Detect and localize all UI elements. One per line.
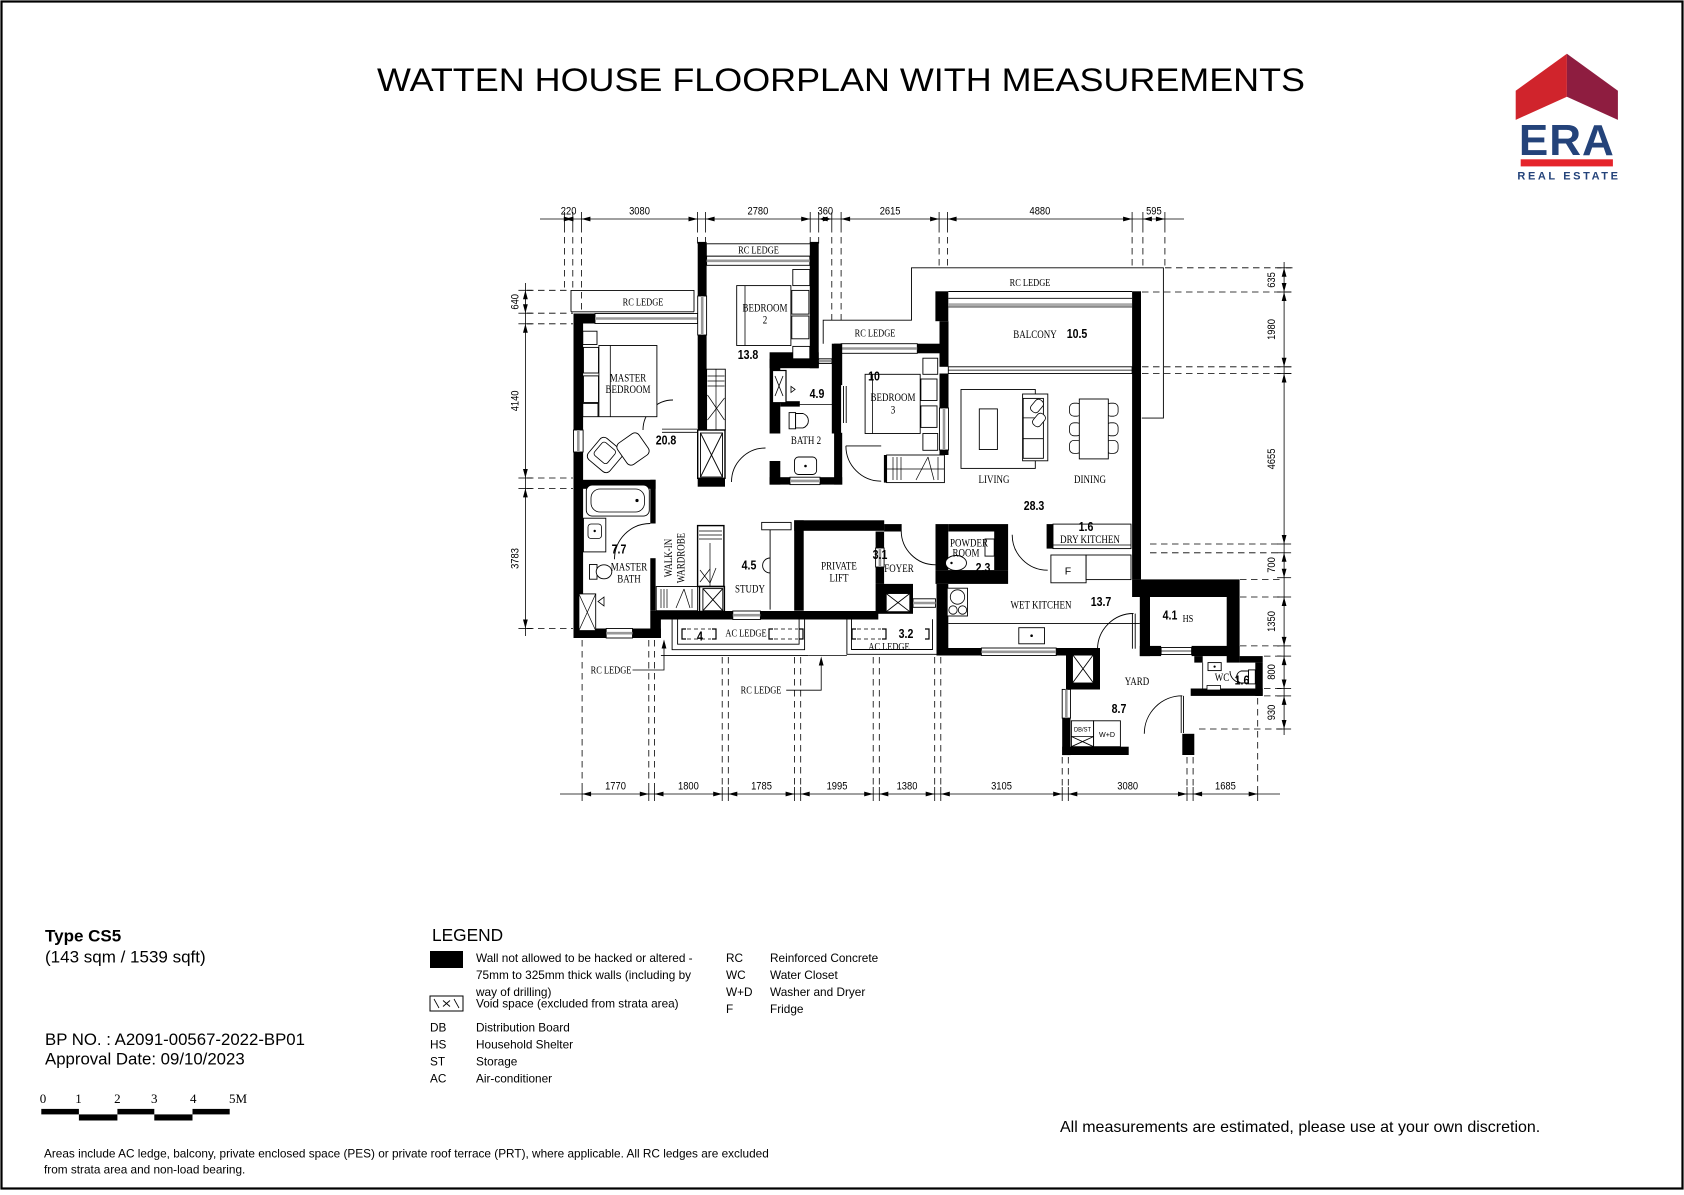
svg-text:MASTER: MASTER: [611, 562, 648, 574]
svg-text:1.6: 1.6: [1235, 673, 1250, 688]
svg-text:RC: RC: [726, 951, 744, 965]
svg-text:595: 595: [1146, 206, 1162, 218]
svg-text:W+D: W+D: [726, 985, 753, 999]
svg-text:WET KITCHEN: WET KITCHEN: [1011, 600, 1072, 612]
svg-text:800: 800: [1266, 664, 1278, 680]
svg-text:(143 sqm / 1539 sqft): (143 sqm / 1539 sqft): [45, 948, 206, 967]
svg-text:F: F: [726, 1002, 733, 1016]
svg-text:BATH 2: BATH 2: [791, 435, 821, 447]
svg-text:220: 220: [561, 206, 577, 218]
svg-text:YARD: YARD: [1125, 676, 1149, 688]
svg-text:HS: HS: [430, 1038, 447, 1052]
svg-text:2615: 2615: [880, 206, 901, 218]
svg-text:640: 640: [510, 294, 522, 310]
svg-text:Distribution Board: Distribution Board: [476, 1021, 570, 1035]
svg-text:Wall not allowed to be hacked: Wall not allowed to be hacked or altered…: [476, 951, 693, 965]
svg-text:RC LEDGE: RC LEDGE: [591, 665, 632, 677]
svg-text:1350: 1350: [1266, 611, 1278, 632]
svg-text:360: 360: [818, 206, 834, 218]
svg-text:3783: 3783: [510, 548, 522, 569]
svg-text:Household Shelter: Household Shelter: [476, 1038, 573, 1052]
svg-text:RC LEDGE: RC LEDGE: [1010, 277, 1051, 289]
svg-text:1770: 1770: [605, 781, 626, 793]
svg-text:BEDROOM: BEDROOM: [743, 302, 788, 314]
svg-text:AC LEDGE: AC LEDGE: [725, 628, 767, 640]
svg-text:RC LEDGE: RC LEDGE: [855, 328, 896, 340]
svg-text:635: 635: [1266, 272, 1278, 288]
svg-text:Storage: Storage: [476, 1055, 518, 1069]
svg-text:STUDY: STUDY: [735, 584, 765, 596]
svg-text:F: F: [1065, 566, 1071, 578]
svg-text:BEDROOM: BEDROOM: [871, 392, 916, 404]
svg-text:All measurements are estimated: All measurements are estimated, please u…: [1060, 1119, 1540, 1136]
svg-text:DINING: DINING: [1074, 474, 1106, 486]
svg-text:8.7: 8.7: [1112, 701, 1127, 716]
svg-text:AC LEDGE: AC LEDGE: [868, 641, 910, 653]
svg-text:DB: DB: [430, 1021, 447, 1035]
svg-text:LIFT: LIFT: [830, 573, 849, 585]
svg-text:from strata area and non-load: from strata area and non-load bearing.: [44, 1162, 245, 1176]
svg-text:4: 4: [697, 629, 703, 644]
svg-text:Type CS5: Type CS5: [45, 927, 121, 946]
svg-text:13.8: 13.8: [738, 347, 759, 362]
svg-text:WC: WC: [1215, 672, 1230, 684]
svg-text:Void space (excluded from stra: Void space (excluded from strata area): [476, 997, 679, 1011]
svg-text:Air-conditioner: Air-conditioner: [476, 1072, 552, 1086]
svg-text:3080: 3080: [629, 206, 650, 218]
svg-text:Water Closet: Water Closet: [770, 968, 838, 982]
svg-text:930: 930: [1266, 705, 1278, 721]
svg-text:7.7: 7.7: [612, 542, 627, 557]
svg-text:DB/ST: DB/ST: [1074, 727, 1091, 734]
svg-text:Fridge: Fridge: [770, 1002, 804, 1016]
svg-text:4140: 4140: [510, 391, 522, 412]
svg-text:1685: 1685: [1215, 781, 1236, 793]
svg-text:1800: 1800: [678, 781, 699, 793]
svg-text:3: 3: [891, 405, 896, 417]
svg-text:2.3: 2.3: [976, 560, 991, 575]
svg-text:WALK-IN: WALK-IN: [663, 538, 675, 577]
svg-text:1980: 1980: [1266, 319, 1278, 340]
svg-text:LIVING: LIVING: [979, 474, 1010, 486]
svg-text:WC: WC: [726, 968, 746, 982]
svg-text:3105: 3105: [991, 781, 1012, 793]
svg-text:Reinforced Concrete: Reinforced Concrete: [770, 951, 879, 965]
svg-text:3.2: 3.2: [899, 626, 914, 641]
svg-text:4655: 4655: [1266, 449, 1278, 470]
svg-text:LEGEND: LEGEND: [432, 925, 503, 945]
svg-text:4.1: 4.1: [1163, 608, 1178, 623]
svg-text:1380: 1380: [897, 781, 918, 793]
svg-text:WARDROBE: WARDROBE: [676, 533, 688, 583]
svg-text:0: 0: [40, 1091, 47, 1106]
svg-text:MASTER: MASTER: [610, 373, 647, 385]
svg-text:BALCONY: BALCONY: [1013, 329, 1057, 341]
svg-text:ROOM: ROOM: [953, 548, 980, 560]
svg-text:PRIVATE: PRIVATE: [821, 561, 857, 573]
svg-text:28.3: 28.3: [1024, 498, 1045, 513]
svg-text:4: 4: [190, 1091, 197, 1106]
svg-text:2: 2: [114, 1091, 121, 1106]
svg-text:HS: HS: [1183, 613, 1194, 625]
svg-text:W+D: W+D: [1099, 730, 1116, 739]
svg-text:4.5: 4.5: [742, 558, 757, 573]
svg-text:RC LEDGE: RC LEDGE: [623, 297, 664, 309]
svg-text:1785: 1785: [751, 781, 772, 793]
svg-text:2: 2: [763, 315, 768, 327]
svg-text:Areas include AC ledge, balcon: Areas include AC ledge, balcony, private…: [44, 1146, 769, 1160]
svg-text:BEDROOM: BEDROOM: [606, 384, 651, 396]
svg-text:ERA: ERA: [1519, 116, 1615, 165]
svg-text:REAL ESTATE: REAL ESTATE: [1517, 171, 1620, 183]
svg-text:BP NO. : A2091-00567-2022-BP01: BP NO. : A2091-00567-2022-BP01: [45, 1030, 305, 1049]
svg-text:1995: 1995: [827, 781, 848, 793]
svg-text:RC LEDGE: RC LEDGE: [738, 245, 779, 257]
svg-text:Washer and Dryer: Washer and Dryer: [770, 985, 865, 999]
svg-text:ST: ST: [430, 1055, 445, 1069]
svg-text:3: 3: [151, 1091, 158, 1106]
svg-text:WATTEN HOUSE FLOORPLAN WITH ME: WATTEN HOUSE FLOORPLAN WITH MEASUREMENTS: [377, 62, 1305, 98]
svg-text:AC: AC: [430, 1072, 447, 1086]
svg-text:2780: 2780: [748, 206, 769, 218]
svg-text:75mm to 325mm thick walls (inc: 75mm to 325mm thick walls (including by: [476, 968, 691, 982]
svg-text:FOYER: FOYER: [884, 563, 914, 575]
svg-text:10.5: 10.5: [1067, 326, 1088, 341]
svg-text:4880: 4880: [1030, 206, 1051, 218]
svg-text:3.1: 3.1: [873, 547, 888, 562]
svg-text:1: 1: [75, 1091, 82, 1106]
svg-text:DRY KITCHEN: DRY KITCHEN: [1060, 534, 1120, 546]
svg-text:20.8: 20.8: [656, 433, 677, 448]
svg-text:4.9: 4.9: [810, 386, 825, 401]
svg-text:1.6: 1.6: [1079, 519, 1094, 534]
svg-text:700: 700: [1266, 557, 1278, 573]
svg-text:10: 10: [868, 368, 880, 383]
svg-text:Approval Date: 09/10/2023: Approval Date: 09/10/2023: [45, 1050, 245, 1069]
svg-text:5M: 5M: [229, 1091, 248, 1106]
svg-text:3080: 3080: [1117, 781, 1138, 793]
svg-text:RC LEDGE: RC LEDGE: [741, 685, 782, 697]
svg-text:BATH: BATH: [617, 573, 640, 585]
svg-text:13.7: 13.7: [1091, 594, 1112, 609]
